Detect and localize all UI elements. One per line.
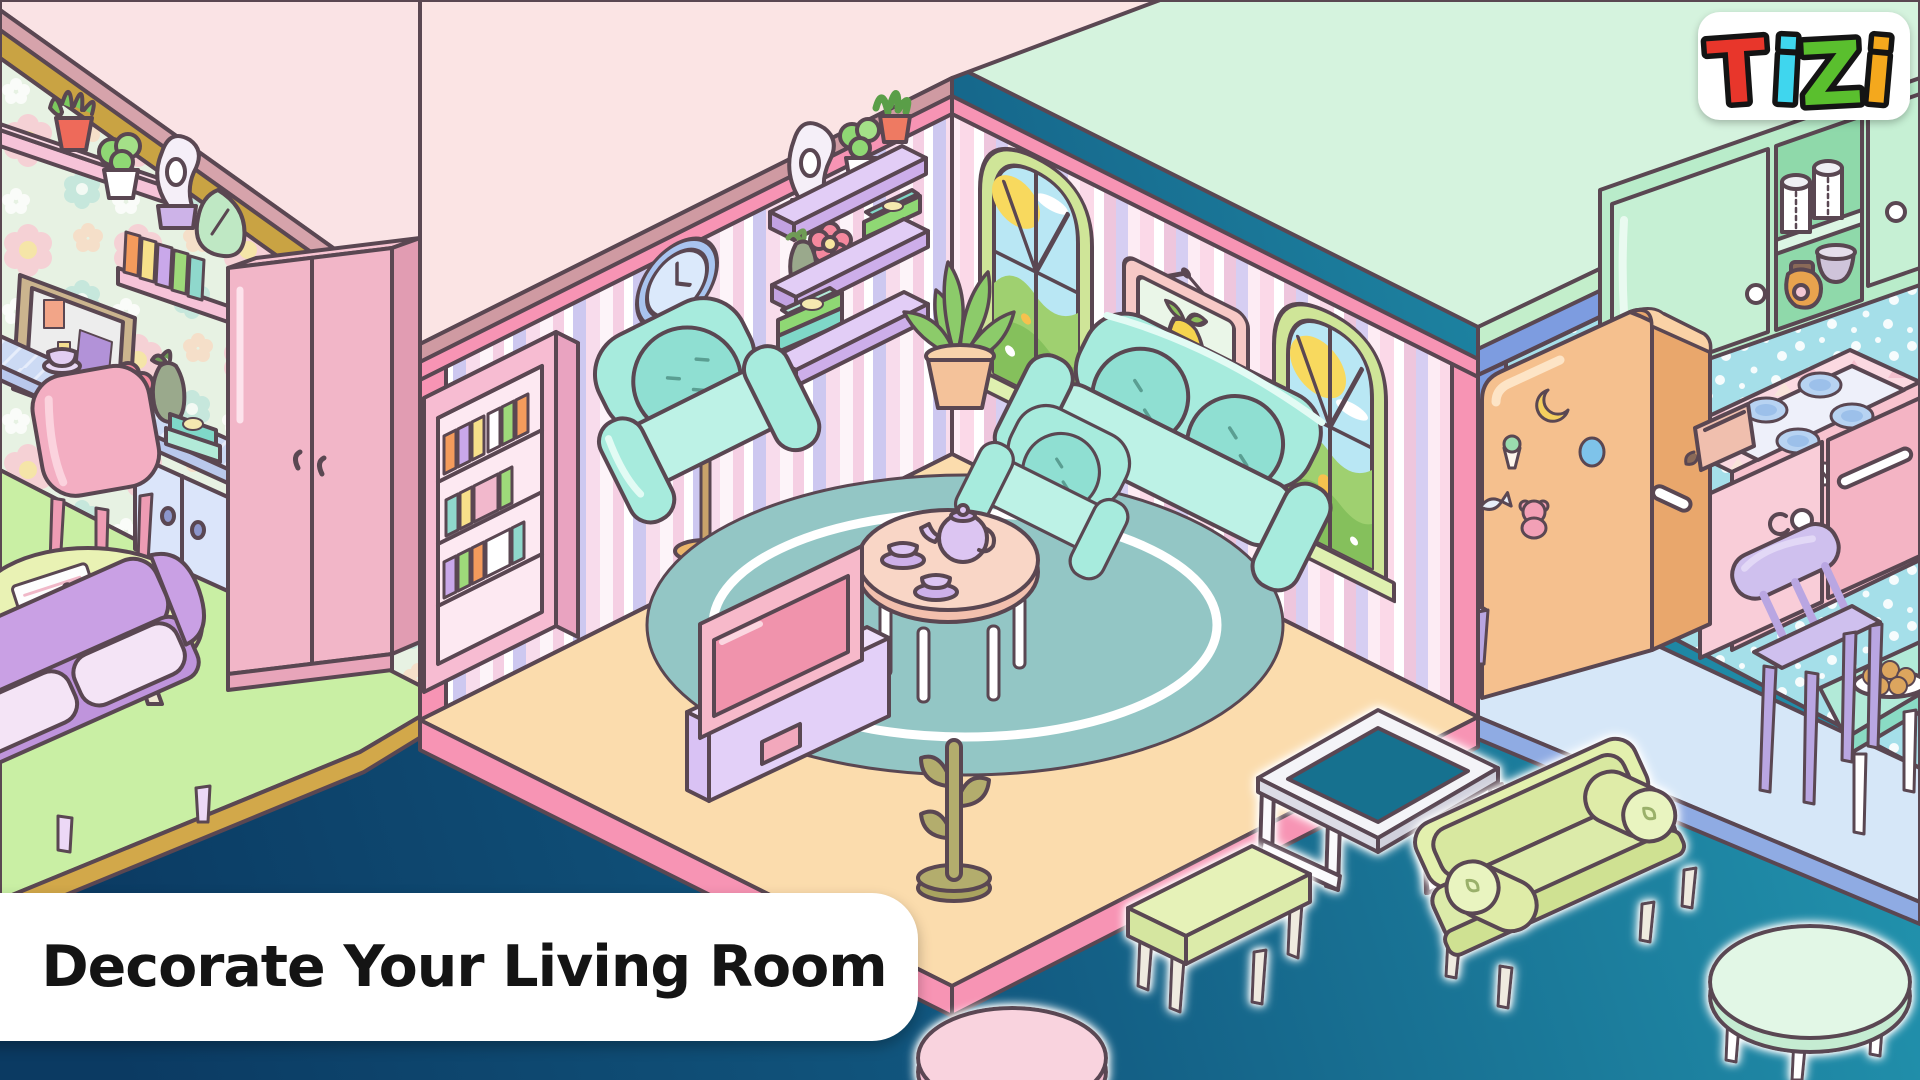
swan-ornament bbox=[157, 136, 199, 228]
teacup-2 bbox=[915, 575, 957, 600]
wardrobe bbox=[228, 238, 420, 690]
logo-letter-z: Z bbox=[1798, 23, 1866, 120]
fridge bbox=[1479, 308, 1711, 698]
tizi-logo: T i Z i bbox=[1698, 12, 1910, 120]
logo-letter-i2: i bbox=[1860, 22, 1898, 120]
teacup bbox=[44, 349, 80, 373]
banner: Decorate Your Living Room bbox=[0, 893, 918, 1041]
game-screen: Decorate Your Living Room T i Z i bbox=[0, 0, 1920, 1080]
logo-letter-t: T bbox=[1705, 21, 1771, 120]
living-wall-trim-right-edge bbox=[1452, 364, 1478, 717]
teacup-1 bbox=[882, 543, 924, 568]
bowl bbox=[1817, 245, 1855, 282]
banner-label: Decorate Your Living Room bbox=[41, 934, 886, 1000]
logo-letters: T i Z i bbox=[1698, 12, 1910, 120]
aloe-pot bbox=[876, 93, 910, 142]
